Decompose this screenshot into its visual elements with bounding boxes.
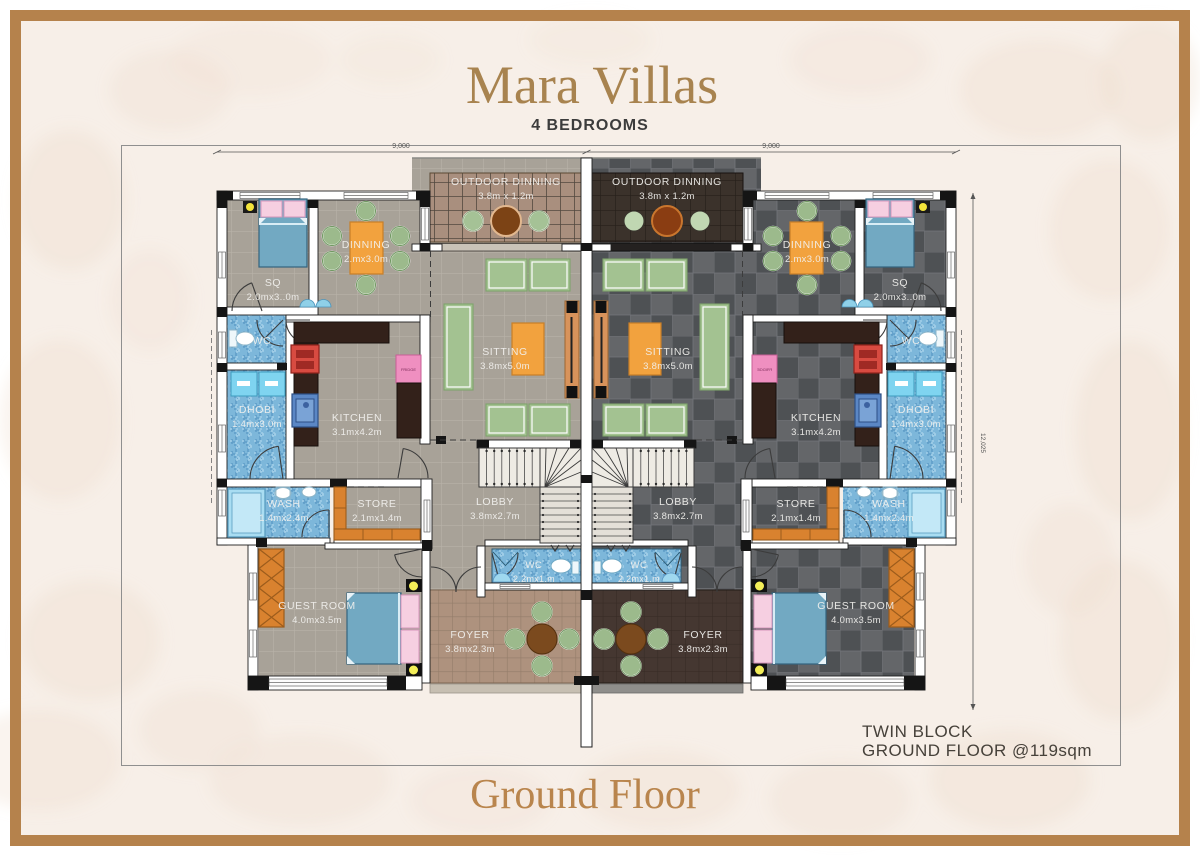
svg-text:2.1mx1.4m: 2.1mx1.4m <box>352 513 402 524</box>
svg-text:DINNING: DINNING <box>783 239 832 251</box>
svg-text:2.mx3.0m: 2.mx3.0m <box>344 254 388 265</box>
svg-text:KITCHEN: KITCHEN <box>332 412 382 424</box>
svg-text:GROUND FLOOR @119sqm: GROUND FLOOR @119sqm <box>862 741 1092 760</box>
svg-text:1.4mx3.0m: 1.4mx3.0m <box>232 419 282 430</box>
svg-text:WC: WC <box>630 560 647 571</box>
svg-text:4.0mx3.5m: 4.0mx3.5m <box>831 615 881 626</box>
svg-text:3.8mx2.3m: 3.8mx2.3m <box>445 644 495 655</box>
svg-text:2.2mx1.m: 2.2mx1.m <box>513 574 555 584</box>
svg-text:1.4mx2.4m: 1.4mx2.4m <box>259 513 309 524</box>
svg-text:3.8m x 1.2m: 3.8m x 1.2m <box>639 191 695 202</box>
svg-text:GUEST ROOM: GUEST ROOM <box>278 600 356 612</box>
svg-text:SITTING: SITTING <box>645 346 691 358</box>
svg-text:Mara Villas: Mara Villas <box>466 55 718 115</box>
svg-text:STORE: STORE <box>777 498 816 510</box>
svg-text:SQ: SQ <box>892 277 908 289</box>
svg-text:9,000: 9,000 <box>762 143 780 150</box>
svg-text:4 BEDROOMS: 4 BEDROOMS <box>531 117 649 134</box>
svg-text:3.8mx2.7m: 3.8mx2.7m <box>653 511 703 522</box>
svg-text:2.mx3.0m: 2.mx3.0m <box>785 254 829 265</box>
svg-text:FOYER: FOYER <box>683 629 722 641</box>
svg-text:3.8m x 1.2m: 3.8m x 1.2m <box>478 191 534 202</box>
svg-text:FOYER: FOYER <box>450 629 489 641</box>
svg-text:3.1mx4.2m: 3.1mx4.2m <box>332 427 382 438</box>
svg-text:KITCHEN: KITCHEN <box>791 412 841 424</box>
svg-text:3.8mx2.7m: 3.8mx2.7m <box>470 511 520 522</box>
svg-text:OUTDOOR DINNING: OUTDOOR DINNING <box>612 176 722 188</box>
svg-text:WC: WC <box>525 560 542 571</box>
svg-text:3.1mx4.2m: 3.1mx4.2m <box>791 427 841 438</box>
svg-text:1.4mx3.0m: 1.4mx3.0m <box>891 419 941 430</box>
svg-text:9,000: 9,000 <box>392 143 410 150</box>
svg-text:3.8mx5.0m: 3.8mx5.0m <box>480 361 530 372</box>
svg-text:SITTING: SITTING <box>482 346 528 358</box>
svg-text:Ground Floor: Ground Floor <box>470 772 700 818</box>
svg-text:3.8mx2.3m: 3.8mx2.3m <box>678 644 728 655</box>
svg-text:2.1mx1.4m: 2.1mx1.4m <box>771 513 821 524</box>
svg-text:DHOBI: DHOBI <box>898 404 934 416</box>
svg-text:12,025: 12,025 <box>979 433 986 453</box>
svg-text:3.8mx5.0m: 3.8mx5.0m <box>643 361 693 372</box>
svg-text:DHOBI: DHOBI <box>239 404 275 416</box>
svg-text:2.2mx1.m: 2.2mx1.m <box>618 574 660 584</box>
svg-text:LOBBY: LOBBY <box>476 496 514 508</box>
svg-text:GUEST ROOM: GUEST ROOM <box>817 600 895 612</box>
svg-text:SQ: SQ <box>265 277 281 289</box>
svg-text:2.0mx3..0m: 2.0mx3..0m <box>247 292 300 303</box>
svg-text:4.0mx3.5m: 4.0mx3.5m <box>292 615 342 626</box>
svg-text:1.4mx2.4m: 1.4mx2.4m <box>864 513 914 524</box>
svg-text:TWIN BLOCK: TWIN BLOCK <box>862 722 973 741</box>
svg-text:WASH: WASH <box>872 498 906 510</box>
svg-text:FRIDGE: FRIDGE <box>757 367 772 372</box>
svg-text:STORE: STORE <box>358 498 397 510</box>
svg-text:OUTDOOR DINNING: OUTDOOR DINNING <box>451 176 561 188</box>
svg-text:WC: WC <box>902 335 921 347</box>
svg-text:2.0mx3..0m: 2.0mx3..0m <box>874 292 927 303</box>
svg-text:WASH: WASH <box>267 498 301 510</box>
svg-text:WC: WC <box>253 335 272 347</box>
svg-text:LOBBY: LOBBY <box>659 496 697 508</box>
svg-text:DINNING: DINNING <box>342 239 391 251</box>
svg-text:FRIDGE: FRIDGE <box>401 367 416 372</box>
